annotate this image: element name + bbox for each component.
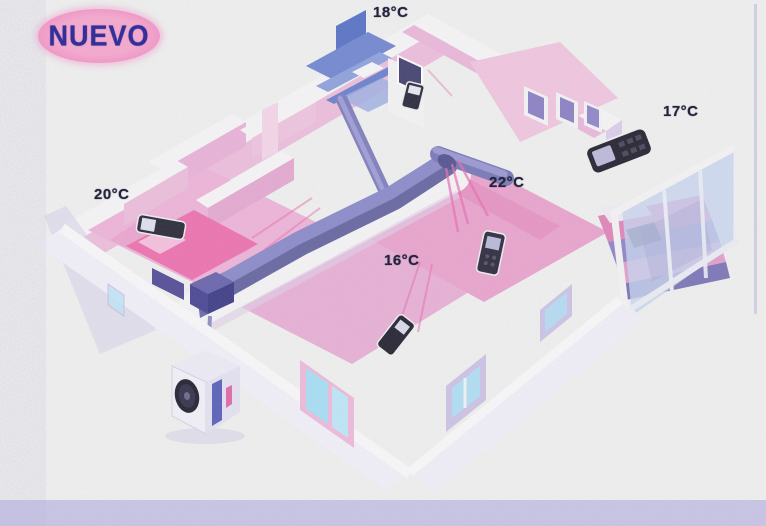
left-edge-grain	[0, 0, 46, 526]
nuevo-badge-label: NUEVO	[48, 20, 149, 53]
house-cutaway-illustration	[0, 0, 766, 526]
temp-label-22c: 22°C	[489, 174, 525, 191]
scan-grain	[0, 0, 766, 526]
temp-label-16c: 16°C	[384, 252, 420, 269]
temp-label-17c: 17°C	[663, 103, 699, 120]
nuevo-badge: NUEVO	[38, 9, 160, 63]
scanned-brochure-page: NUEVO 18°C 17°C 20°C 22°C 16°C	[0, 0, 766, 526]
temp-label-18c: 18°C	[373, 4, 409, 21]
temp-label-20c: 20°C	[94, 186, 130, 203]
